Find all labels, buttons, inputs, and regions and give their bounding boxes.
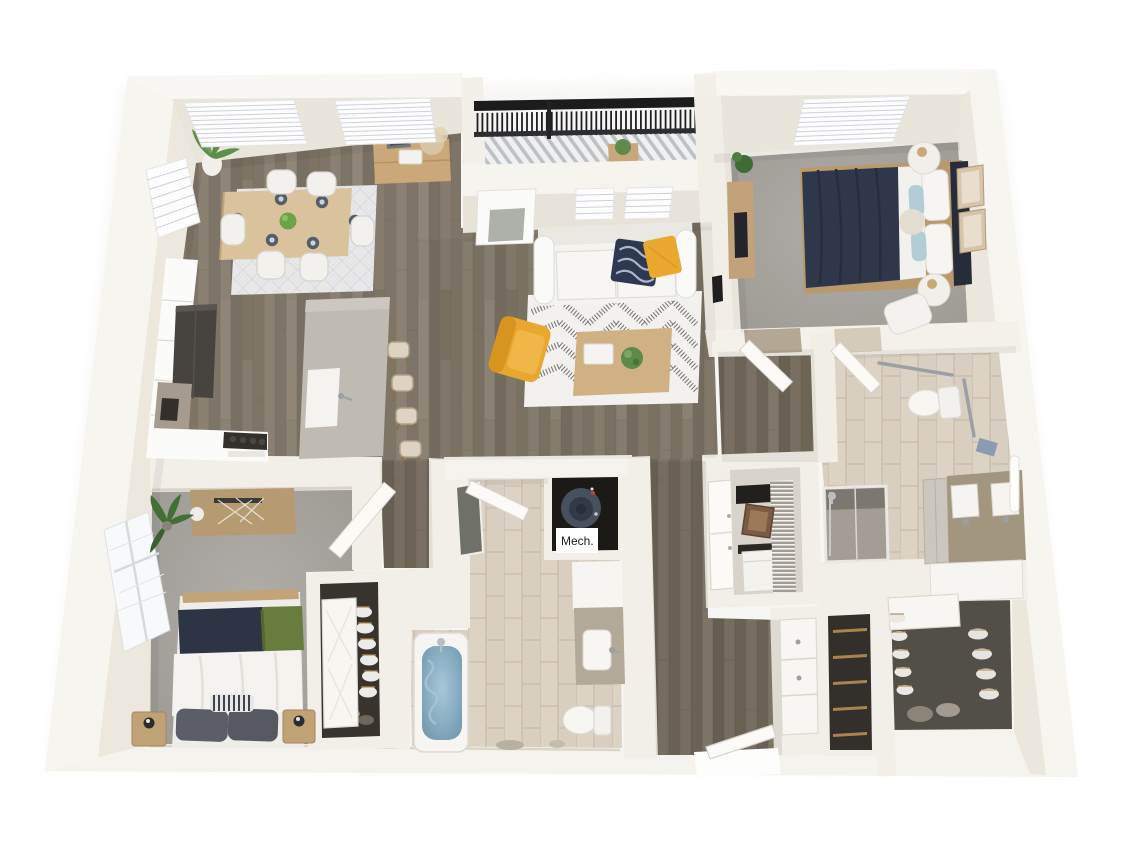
svg-text:Mech.: Mech.	[561, 534, 594, 548]
